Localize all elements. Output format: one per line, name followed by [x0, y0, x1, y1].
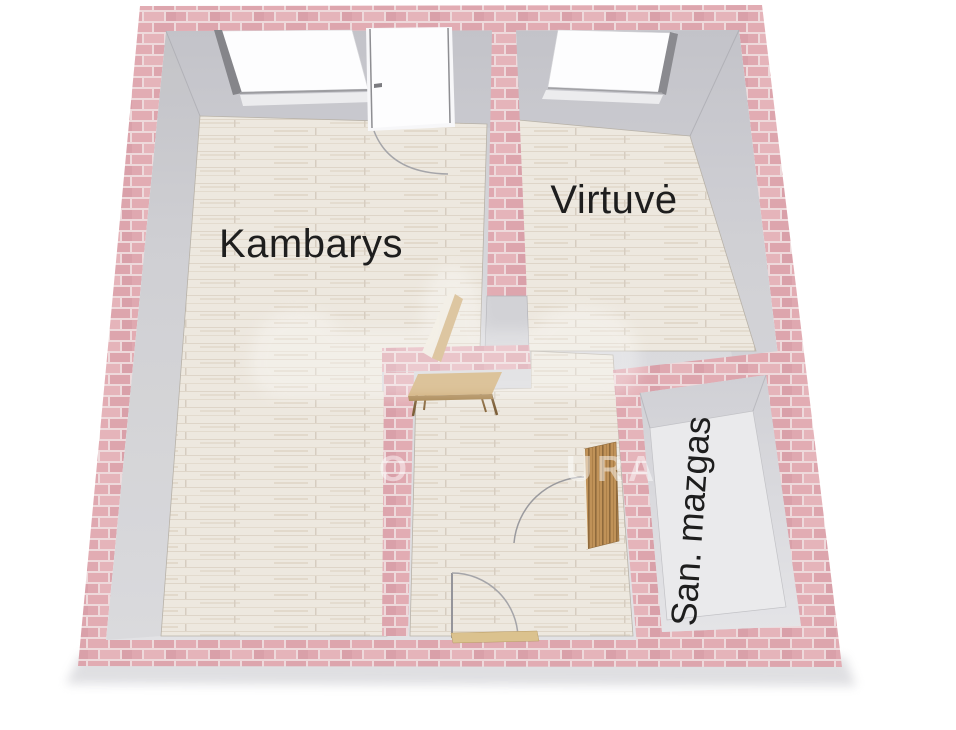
- room-label-kambarys: Kambarys: [219, 222, 403, 266]
- entrance-threshold: [451, 631, 539, 643]
- balcony-door-leaf: [370, 28, 450, 128]
- kambarys-window-glass: [222, 30, 368, 92]
- virtuve-window-glass: [548, 30, 675, 92]
- watermark-fragment-right: URA: [566, 448, 659, 489]
- virtuve-window: [542, 30, 678, 104]
- floorplan-page: O URA Kambarys Virtuvė San. mazgas: [0, 0, 956, 730]
- watermark-fragment-left: O: [379, 448, 412, 489]
- room-label-virtuve: Virtuvė: [550, 178, 677, 222]
- floorplan-canvas: O URA Kambarys Virtuvė San. mazgas: [0, 0, 956, 730]
